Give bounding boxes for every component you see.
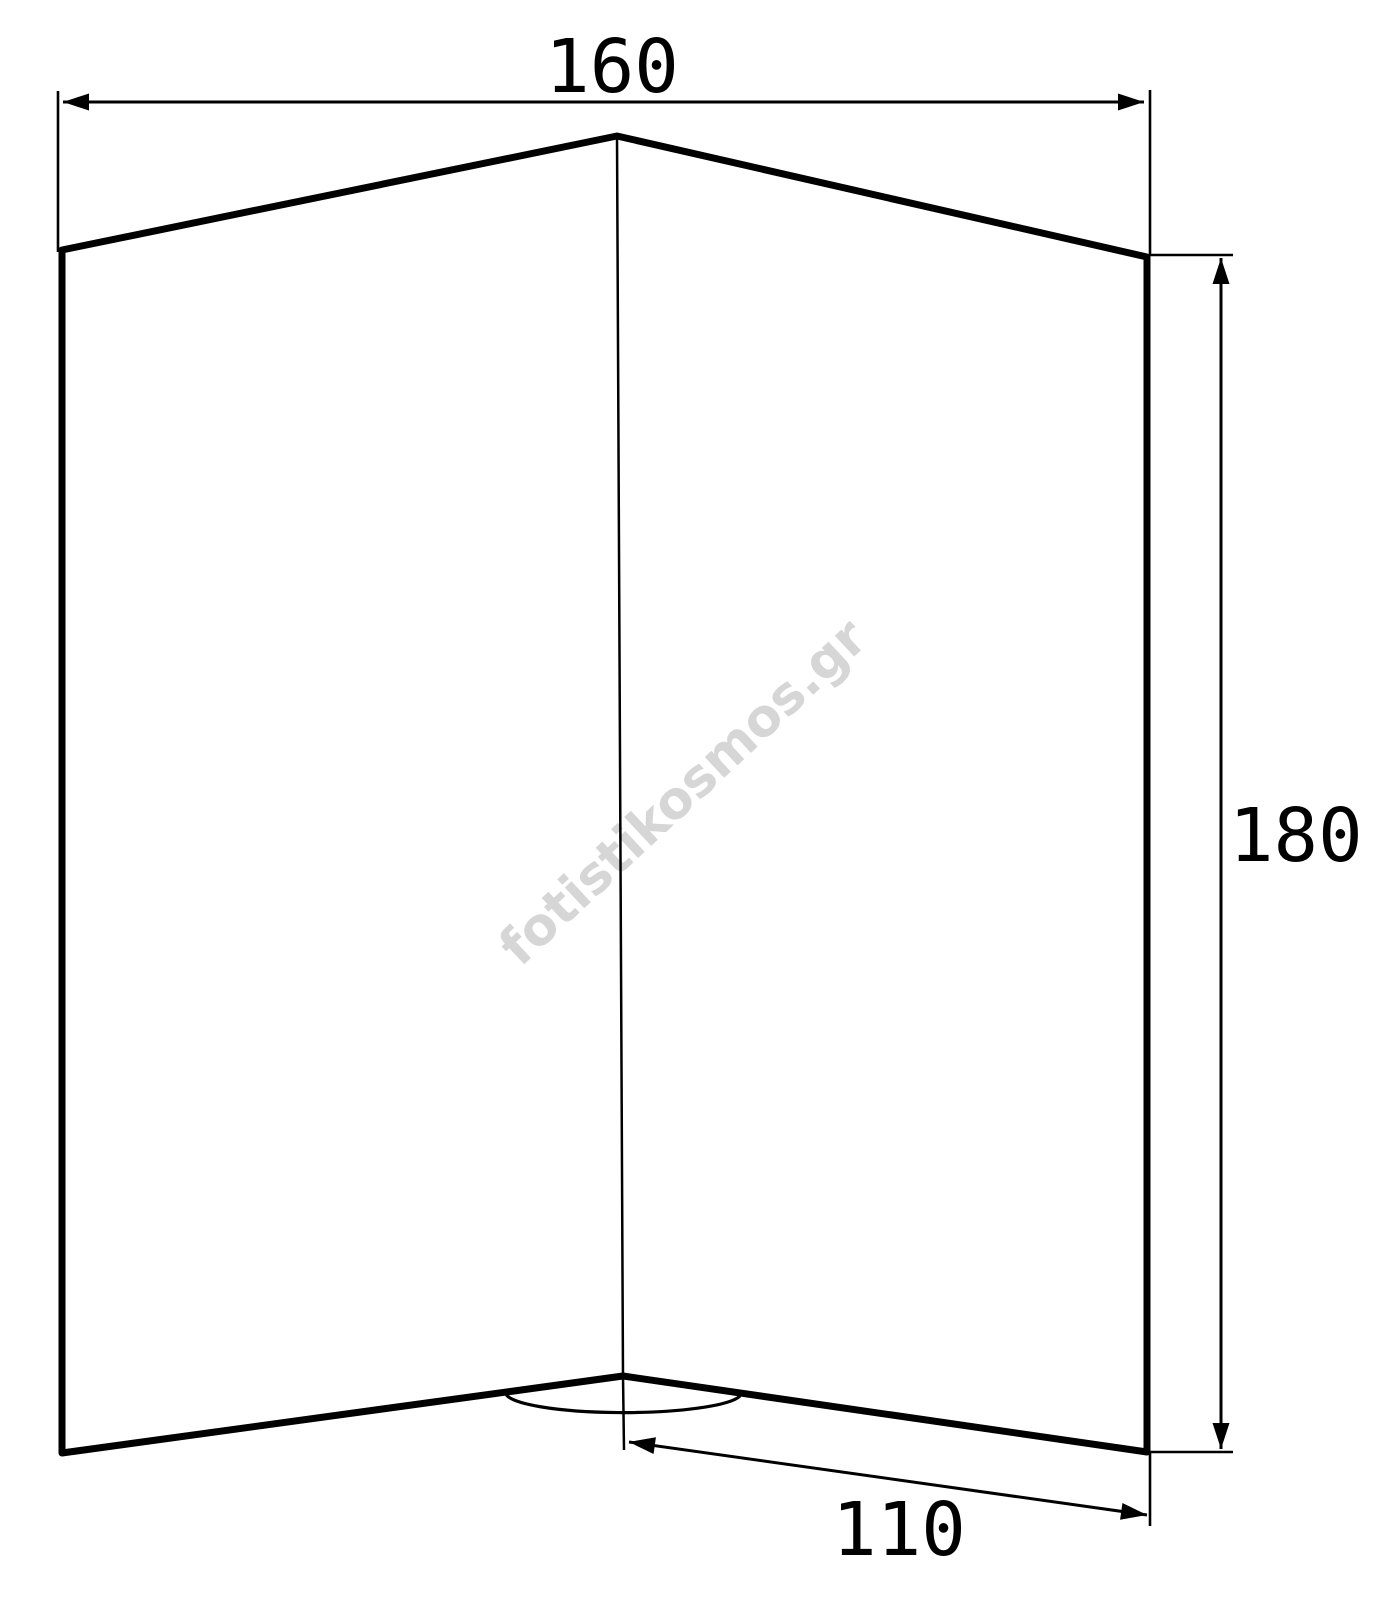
dim-label-height: 180 — [1229, 793, 1363, 879]
dimension-height-180: 180 — [1149, 255, 1363, 1452]
dim-label-width: 160 — [545, 24, 679, 110]
technical-drawing-page: fotistikosmos.gr 160 180 — [0, 0, 1399, 1600]
watermark: fotistikosmos.gr — [488, 607, 879, 977]
dim-label-depth: 110 — [832, 1487, 966, 1573]
dimension-depth-110: 110 — [629, 1442, 1150, 1573]
lamp-body-outline — [62, 136, 1147, 1453]
watermark-text: fotistikosmos.gr — [488, 607, 879, 977]
lamp-body — [62, 136, 1147, 1453]
corner-wall-lamp-drawing: fotistikosmos.gr 160 180 — [0, 0, 1399, 1600]
center-fold-line — [617, 136, 624, 1450]
